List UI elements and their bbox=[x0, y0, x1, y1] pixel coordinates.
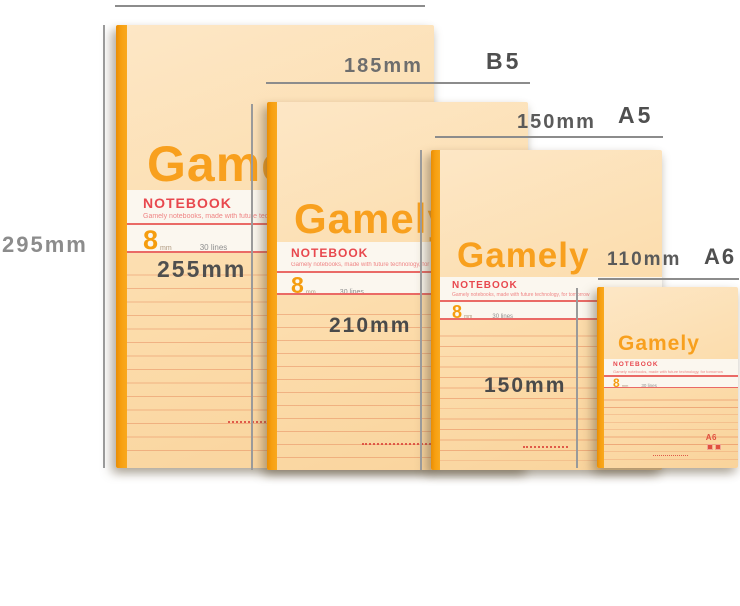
notebook-a6: Gamely NOTEBOOK Gamely notebooks, made w… bbox=[597, 287, 738, 468]
a5-width-label: 150mm bbox=[517, 111, 596, 134]
a5-size-name-label: A5 bbox=[618, 102, 653, 129]
brand-logo: Gamely bbox=[457, 238, 589, 273]
a6-width-measure-line bbox=[598, 278, 739, 280]
a6-width-label: 110mm bbox=[607, 249, 681, 271]
ruled-lines-area bbox=[604, 393, 738, 462]
notebook-a5-spine bbox=[431, 150, 440, 470]
a6-size-name-label: A6 bbox=[704, 244, 736, 270]
notebook-a6-cover: Gamely NOTEBOOK Gamely notebooks, made w… bbox=[604, 287, 738, 468]
notebook-size-comparison-diagram: Gamely NOTEBOOK Gamely notebooks, made w… bbox=[0, 0, 740, 606]
corner-logo-mark bbox=[707, 444, 721, 450]
a4-width-measure-line bbox=[115, 5, 425, 7]
b5-height-label: 255mm bbox=[157, 256, 246, 283]
size-corner-mark: A6 bbox=[706, 433, 717, 442]
ruling-value: 8 bbox=[143, 228, 158, 252]
fine-print-text bbox=[228, 421, 266, 423]
b5-height-measure-line bbox=[251, 104, 253, 470]
a6-height-measure-line bbox=[576, 288, 578, 468]
fine-print-text bbox=[362, 443, 434, 445]
a5-height-label: 210mm bbox=[329, 314, 411, 338]
brand-logo: Gamely bbox=[294, 198, 452, 240]
band-rule-bottom bbox=[604, 387, 738, 389]
fine-print-text bbox=[653, 455, 688, 456]
notebook-b5-spine bbox=[267, 102, 277, 470]
cover-title-band: NOTEBOOK Gamely notebooks, made with fut… bbox=[604, 359, 738, 388]
cover-tagline: Gamely notebooks, made with future techn… bbox=[613, 369, 729, 374]
a5-height-measure-line bbox=[420, 150, 422, 470]
fine-print-text bbox=[523, 446, 568, 448]
a5-width-measure-line bbox=[435, 136, 663, 138]
band-rule-top bbox=[604, 375, 738, 377]
b5-size-name-label: B5 bbox=[486, 48, 521, 75]
notebook-label: NOTEBOOK bbox=[613, 359, 729, 368]
b5-width-label: 185mm bbox=[344, 55, 423, 78]
b5-width-measure-line bbox=[266, 82, 530, 84]
a4-height-label: 295mm bbox=[2, 232, 88, 258]
brand-logo: Gamely bbox=[618, 333, 700, 354]
notebook-a6-spine bbox=[597, 287, 604, 468]
notebook-a4-spine bbox=[116, 25, 127, 468]
a4-height-measure-line bbox=[103, 25, 105, 468]
a6-height-label: 150mm bbox=[484, 374, 566, 398]
